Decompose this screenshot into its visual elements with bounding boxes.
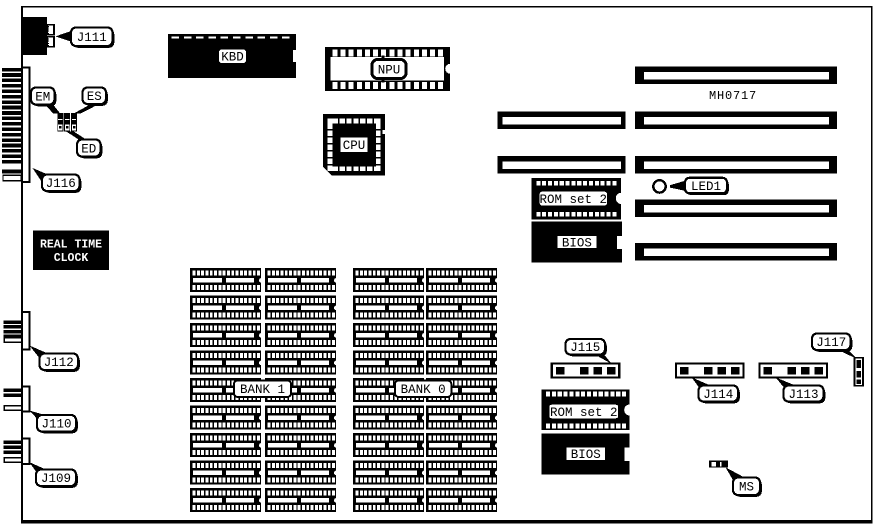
svg-text:EM: EM: [35, 90, 50, 104]
svg-text:BANK 1: BANK 1: [240, 383, 285, 397]
svg-text:ROM set 2: ROM set 2: [540, 193, 608, 207]
svg-text:J116: J116: [46, 177, 76, 191]
svg-text:J114: J114: [703, 388, 733, 402]
svg-text:BANK 0: BANK 0: [401, 383, 446, 397]
svg-text:MS: MS: [739, 481, 754, 495]
svg-text:J117: J117: [816, 336, 846, 350]
svg-text:BIOS: BIOS: [571, 448, 601, 462]
svg-text:ROM set 2: ROM set 2: [550, 406, 618, 420]
svg-text:ED: ED: [81, 142, 96, 156]
svg-text:ES: ES: [87, 90, 102, 104]
svg-text:KBD: KBD: [221, 51, 244, 65]
svg-text:LED1: LED1: [691, 180, 721, 194]
svg-text:J109: J109: [41, 472, 71, 486]
svg-text:REAL TIME: REAL TIME: [40, 238, 102, 251]
svg-text:MH0717: MH0717: [709, 89, 757, 103]
svg-text:NPU: NPU: [378, 63, 401, 77]
svg-text:CLOCK: CLOCK: [54, 252, 89, 265]
svg-text:J112: J112: [44, 356, 74, 370]
svg-text:J113: J113: [788, 388, 818, 402]
svg-text:J111: J111: [77, 31, 107, 45]
svg-text:J110: J110: [41, 418, 71, 432]
svg-text:CPU: CPU: [343, 139, 366, 153]
svg-text:BIOS: BIOS: [562, 237, 592, 251]
svg-text:J115: J115: [570, 341, 600, 355]
